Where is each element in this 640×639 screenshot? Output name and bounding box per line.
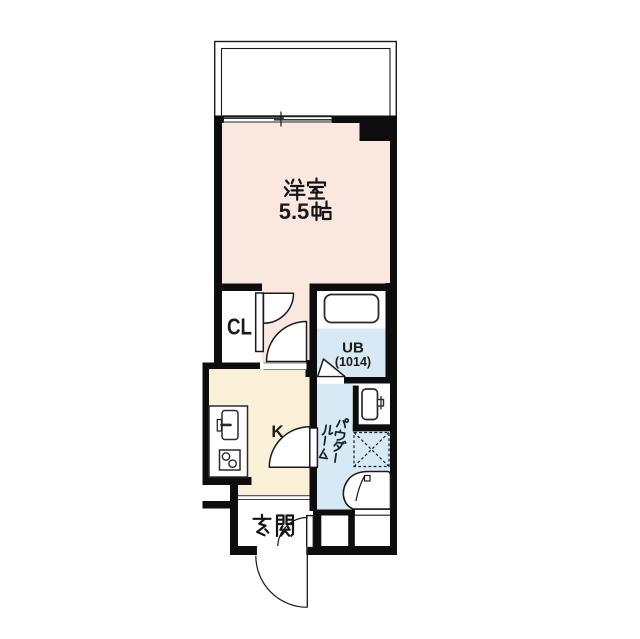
svg-text:UB: UB xyxy=(342,340,364,357)
svg-text:(1014): (1014) xyxy=(335,355,371,369)
svg-text:CL: CL xyxy=(227,314,252,340)
svg-text:K: K xyxy=(271,422,284,441)
svg-text:5.5: 5.5 xyxy=(279,199,310,224)
